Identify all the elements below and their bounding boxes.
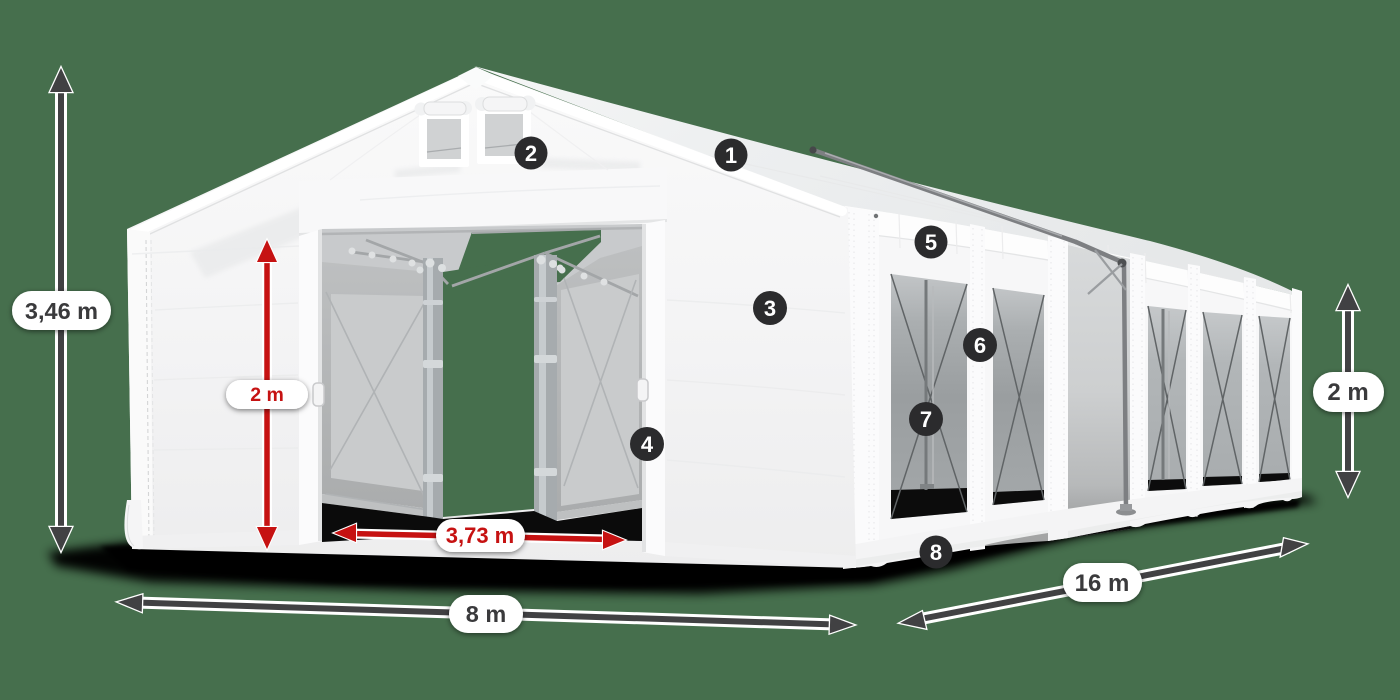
svg-text:1: 1 (725, 143, 737, 168)
svg-text:2 m: 2 m (250, 384, 284, 406)
svg-text:3,46 m: 3,46 m (25, 298, 98, 324)
svg-text:2 m: 2 m (1327, 379, 1368, 406)
svg-text:5: 5 (925, 230, 937, 255)
svg-text:2: 2 (525, 141, 537, 166)
svg-text:3,73 m: 3,73 m (446, 523, 515, 548)
svg-text:7: 7 (920, 407, 932, 432)
svg-text:4: 4 (641, 432, 654, 457)
svg-text:3: 3 (764, 296, 776, 321)
svg-text:8 m: 8 m (466, 601, 507, 627)
svg-text:6: 6 (974, 333, 986, 358)
svg-text:16 m: 16 m (1075, 570, 1130, 597)
svg-text:8: 8 (930, 540, 942, 565)
